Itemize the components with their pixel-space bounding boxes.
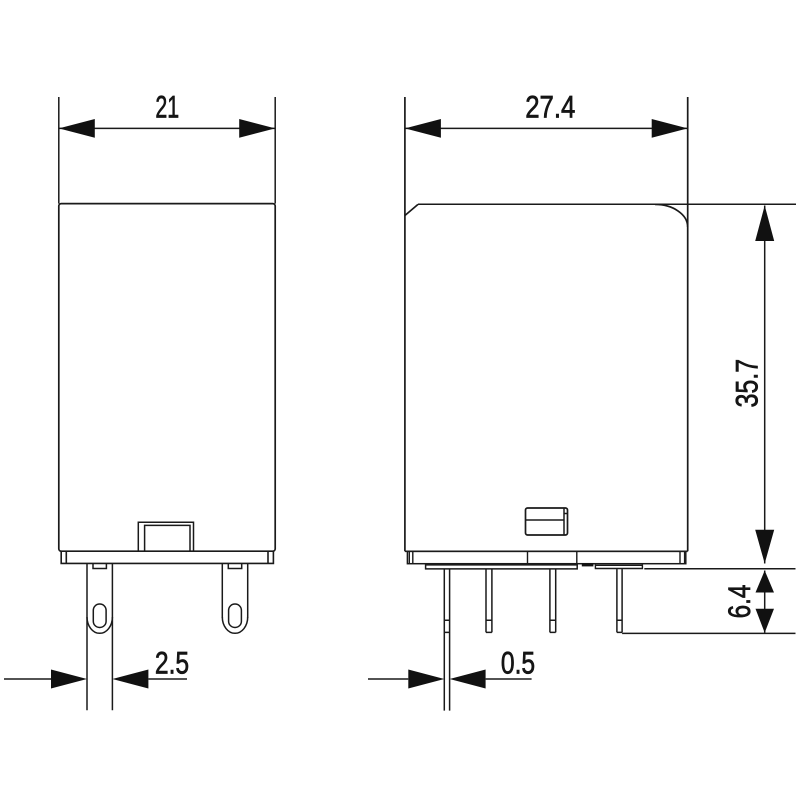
svg-text:21: 21 [155,89,179,125]
svg-text:27.4: 27.4 [525,88,575,124]
svg-text:6.4: 6.4 [721,585,757,619]
svg-text:35.7: 35.7 [729,359,765,408]
svg-text:2.5: 2.5 [155,645,189,681]
svg-text:0.5: 0.5 [501,645,535,681]
